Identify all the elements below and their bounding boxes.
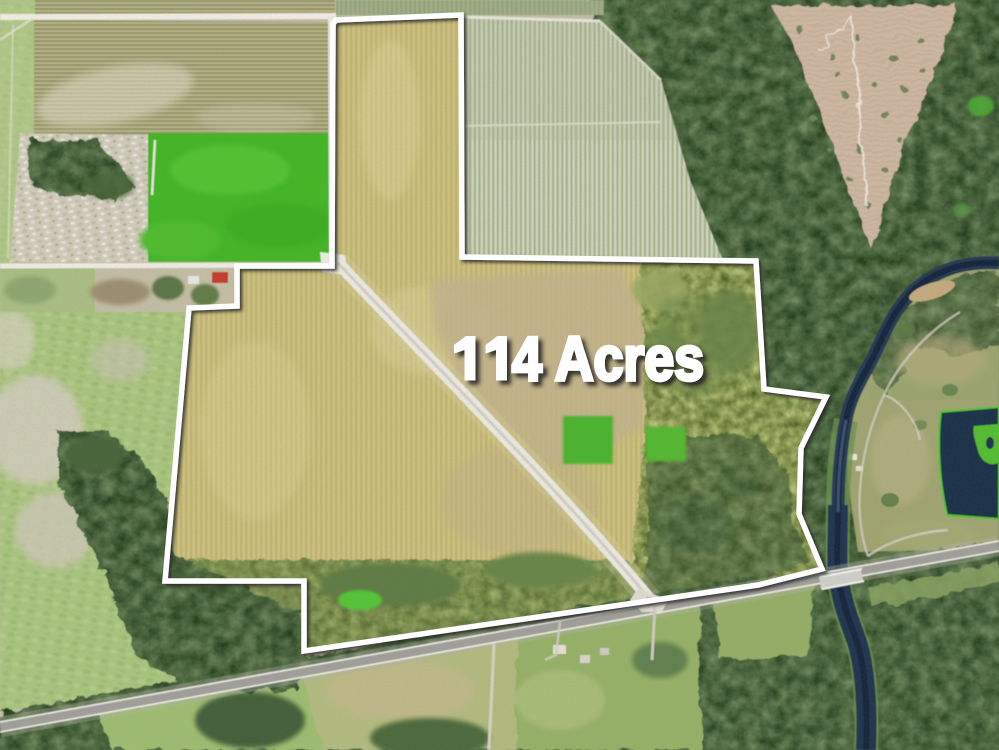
svg-text:4 Acres: 4 Acres <box>512 325 704 393</box>
